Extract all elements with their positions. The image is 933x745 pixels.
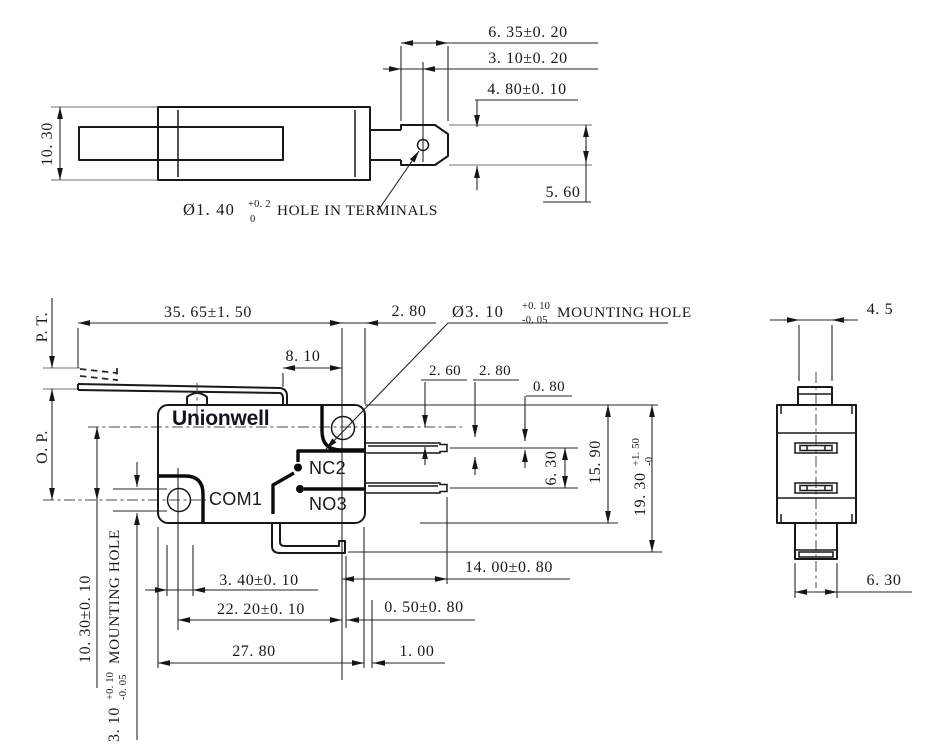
dim-text: 27. 80 [232, 643, 276, 660]
note-label: MOUNTING HOLE [557, 304, 692, 321]
dim-overall-height: 19. 30 +1. 50 -0 [631, 405, 655, 552]
dim-hole-vertical: 10. 30±0. 10 [77, 427, 97, 688]
dim-text: 3. 40±0. 10 [219, 572, 298, 589]
lever [78, 368, 287, 404]
dim-text: 10. 30 [39, 122, 56, 166]
dim-text: 3. 10±0. 20 [488, 50, 567, 67]
nc-contact-dot [294, 464, 302, 472]
dim-terminal-width: 4. 80±0. 10 [475, 81, 578, 190]
dim-top-height: 10. 30 [39, 107, 60, 180]
left-mounting-hole-note: 3. 10 +0. 10 -0. 05 MOUNTING HOLE [105, 462, 137, 742]
dim-body-height: 15. 90 [587, 405, 608, 523]
top-mounting-hole [332, 417, 355, 440]
leader-line [326, 323, 448, 449]
dim-terminal-height: 5. 60 [543, 125, 591, 202]
bottom-terminal [272, 523, 345, 553]
note-label: HOLE IN TERMINALS [277, 202, 438, 219]
microswitch-drawing: 6. 35±0. 20 3. 10±0. 20 4. 80±0. 10 5. 6… [0, 0, 933, 745]
dim-text: 2. 60 [429, 363, 461, 379]
dim-text: 6. 30 [543, 451, 560, 486]
note-tol-sub: -0. 05 [118, 674, 129, 700]
dim-text: 2. 80 [479, 363, 511, 379]
dim-text: 22. 20±0. 10 [217, 601, 305, 618]
dim-text: 2. 80 [392, 303, 427, 320]
no-contact-dot [296, 485, 304, 493]
hole-in-terminals-note: Ø1. 40 +0. 2 0 HOLE IN TERMINALS [183, 151, 438, 225]
dim-terminal-end: 3. 40±0. 10 [145, 572, 318, 590]
dim-body-width: 27. 80 [158, 643, 364, 663]
dim-text: 15. 90 [587, 440, 604, 484]
dim-text: 35. 65±1. 50 [164, 304, 252, 321]
common-arm [273, 473, 294, 514]
dim-hole-pitch: 22. 20±0. 10 [178, 601, 342, 620]
note-tol-sub: -0. 05 [522, 315, 548, 326]
bottom-mount-pad [159, 476, 203, 522]
nc-blade [365, 443, 447, 453]
note-tol-sup: +0. 2 [248, 199, 271, 210]
no-blade [365, 483, 447, 493]
dim-text: 1. 00 [400, 643, 435, 660]
dim-text: 10. 30±0. 10 [77, 575, 94, 663]
dim-blade-offset: 2. 80 [473, 363, 519, 475]
dim-side-terminal-width: 6. 30 [795, 563, 912, 598]
side-view: 4. 5 [770, 301, 912, 598]
dim-text: O. P. [34, 430, 51, 464]
dim-text: 4. 5 [867, 301, 893, 318]
brand-logo: Unionwell [172, 407, 269, 430]
dim-hole-to-edge: 2. 80 [327, 303, 436, 323]
dim-text: 14. 00±0. 80 [465, 559, 553, 576]
dim-terminal-offset: 0. 50±0. 80 [346, 599, 475, 620]
note-base: Ø1. 40 [183, 200, 235, 219]
dim-text: 0. 50±0. 80 [384, 599, 463, 616]
dim-text: 4. 80±0. 10 [487, 81, 566, 98]
dim-text-sup: +1. 50 [631, 438, 642, 466]
dim-text-base: 19. 30 [632, 472, 649, 516]
dim-text-sub: -0 [644, 457, 655, 466]
note-base: Ø3. 10 [452, 302, 504, 321]
note-tol-sub: 0 [250, 214, 255, 225]
dim-text: P. T. [34, 312, 51, 342]
terminal-label-no: NO3 [309, 494, 347, 514]
note-label: MOUNTING HOLE [106, 529, 123, 664]
dim-plunger-width: 4. 5 [770, 301, 893, 320]
side-plunger [798, 387, 832, 405]
top-mount-pad [322, 406, 364, 450]
dim-text: 8. 10 [286, 348, 321, 365]
front-view: Unionwell COM1 NC2 NO3 35. 65±1. 50 2. 8… [34, 298, 692, 742]
drawing-page: 6. 35±0. 20 3. 10±0. 20 4. 80±0. 10 5. 6… [0, 0, 933, 745]
dim-pre-travel: P. T. [34, 298, 52, 368]
note-tol-sup: +0. 10 [105, 672, 116, 700]
dim-text: 6. 35±0. 20 [488, 24, 567, 41]
note-base: 3. 10 [106, 707, 123, 742]
dim-text: 0. 80 [533, 379, 565, 395]
top-view-body-outline [158, 107, 370, 180]
terminal-label-nc: NC2 [309, 458, 346, 478]
dim-terminal-length: 14. 00±0. 80 [342, 559, 570, 579]
dim-operating-position: O. P. [34, 389, 52, 500]
dim-lever-length: 35. 65±1. 50 [78, 304, 342, 323]
dim-hole-offset: 3. 10±0. 20 [383, 50, 598, 69]
dim-edge-step: 1. 00 [372, 643, 445, 663]
dim-text: 6. 30 [867, 572, 902, 589]
dim-hole-cl-offset: 2. 60 [421, 363, 467, 465]
dim-lever-bend: 8. 10 [283, 348, 342, 368]
top-view-lever [79, 127, 283, 160]
note-tol-sup: +0. 10 [522, 301, 550, 312]
top-view: 6. 35±0. 20 3. 10±0. 20 4. 80±0. 10 5. 6… [39, 24, 598, 225]
dim-terminal-total: 6. 35±0. 20 [401, 24, 598, 43]
dim-text: 5. 60 [546, 184, 581, 201]
terminal-label-com: COM1 [209, 489, 262, 509]
top-view-terminal [370, 125, 448, 165]
dim-blade-pitch: 6. 30 [543, 448, 565, 488]
